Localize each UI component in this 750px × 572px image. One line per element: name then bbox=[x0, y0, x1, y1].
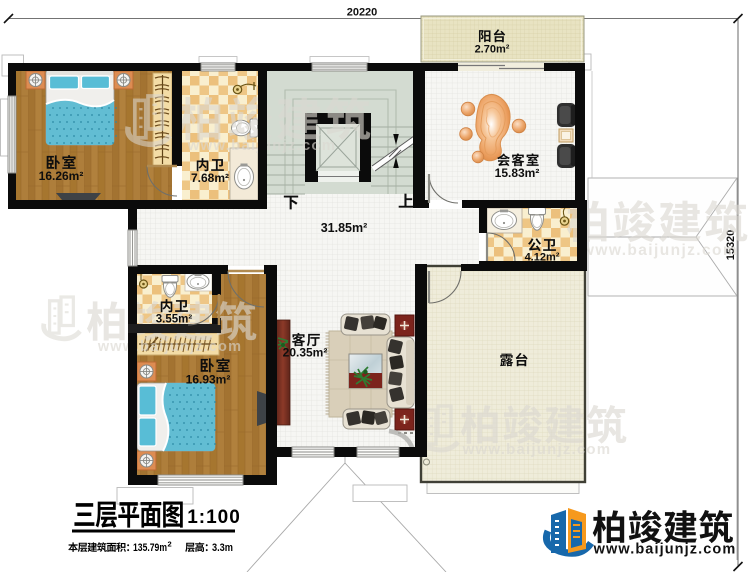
svg-text:3.55m²: 3.55m² bbox=[156, 314, 193, 326]
svg-text:16.26m²: 16.26m² bbox=[39, 169, 84, 183]
svg-text:www.baijunjz.com: www.baijunjz.com bbox=[581, 242, 738, 259]
svg-text:135.79m: 135.79m bbox=[133, 542, 167, 554]
svg-text:www.baijunjz.com: www.baijunjz.com bbox=[593, 542, 737, 558]
svg-text:16.93m²: 16.93m² bbox=[186, 373, 231, 387]
svg-text:4.12m²: 4.12m² bbox=[525, 252, 560, 264]
svg-text:15.83m²: 15.83m² bbox=[495, 166, 540, 180]
svg-text:www.baijunjz.com: www.baijunjz.com bbox=[462, 441, 612, 458]
svg-text:20.35m²: 20.35m² bbox=[283, 346, 328, 360]
svg-text:20220: 20220 bbox=[347, 7, 378, 19]
svg-text:31.85m²: 31.85m² bbox=[321, 221, 368, 235]
svg-text:2: 2 bbox=[168, 540, 172, 549]
svg-text:1:100: 1:100 bbox=[187, 507, 241, 528]
svg-text:3.3m: 3.3m bbox=[212, 542, 233, 554]
svg-text:7.68m²: 7.68m² bbox=[191, 171, 229, 185]
svg-text:www.baijunjz.com: www.baijunjz.com bbox=[97, 339, 242, 355]
svg-text:2.70m²: 2.70m² bbox=[475, 44, 510, 56]
